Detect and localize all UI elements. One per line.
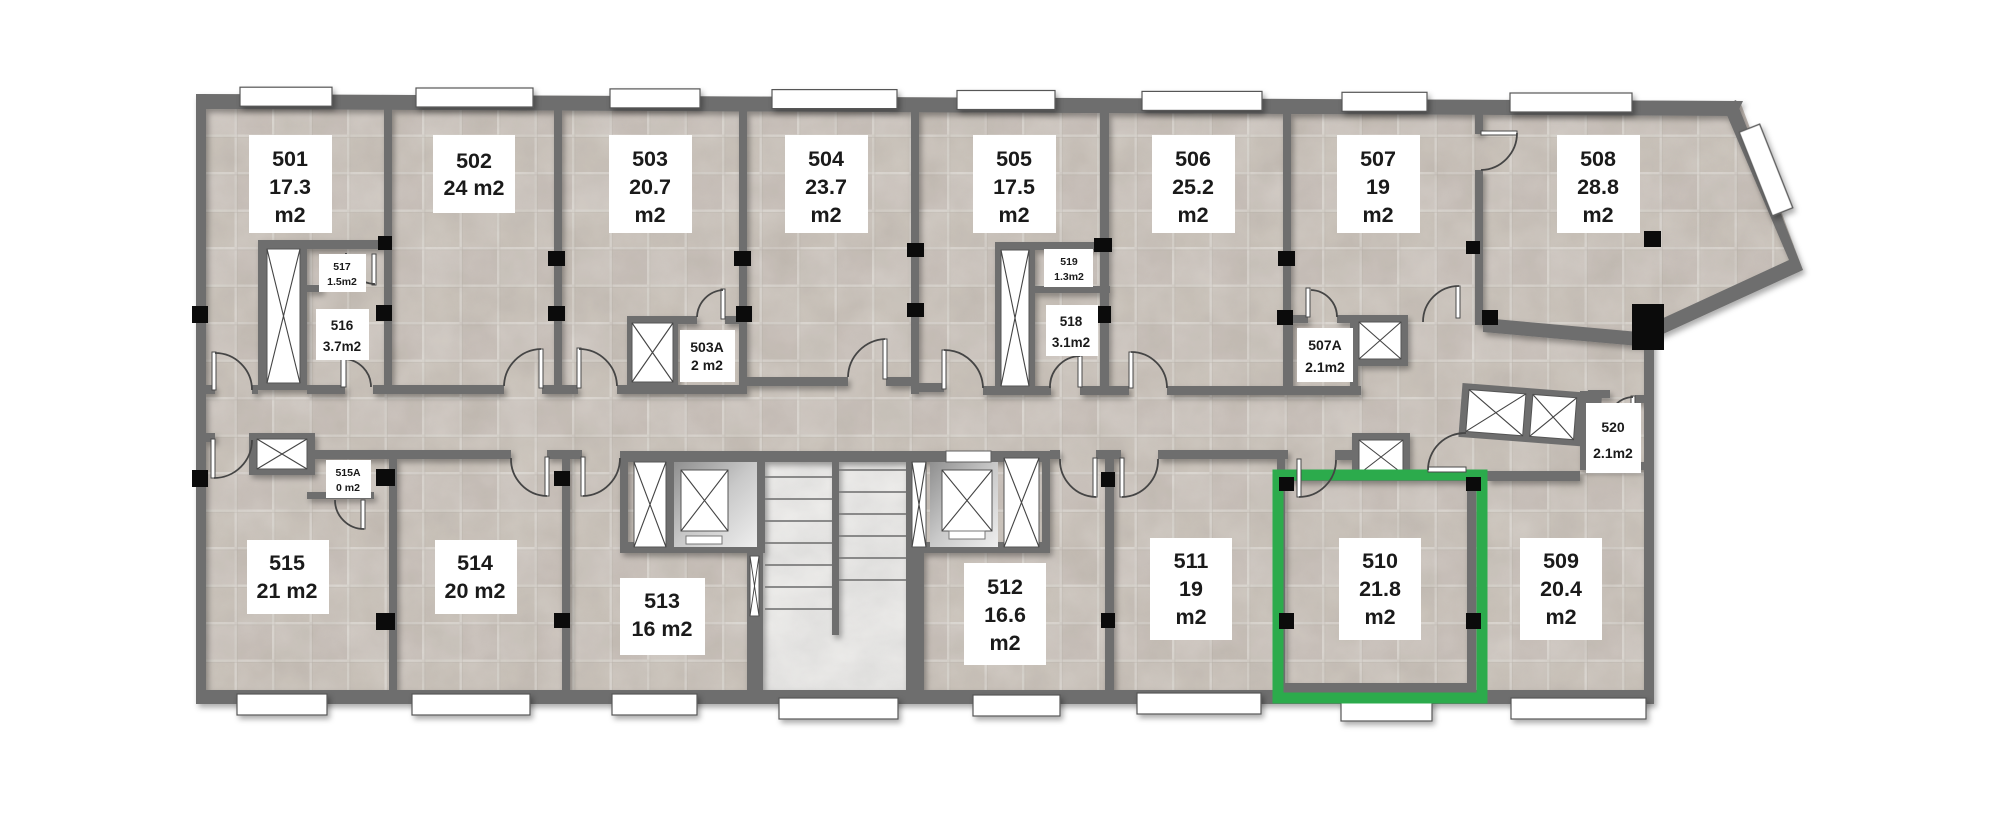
svg-text:515A: 515A — [335, 467, 361, 479]
svg-text:23.7: 23.7 — [805, 175, 847, 199]
svg-text:m2: m2 — [1177, 203, 1208, 227]
svg-text:24 m2: 24 m2 — [444, 176, 505, 200]
svg-text:0 m2: 0 m2 — [336, 482, 360, 494]
svg-text:507A: 507A — [1308, 337, 1341, 353]
svg-text:3.1m2: 3.1m2 — [1052, 335, 1090, 350]
svg-text:503A: 503A — [690, 339, 723, 355]
svg-text:28.8: 28.8 — [1577, 175, 1619, 199]
svg-text:19: 19 — [1179, 577, 1203, 601]
svg-text:2 m2: 2 m2 — [691, 357, 723, 373]
svg-text:21 m2: 21 m2 — [257, 579, 318, 603]
svg-text:m2: m2 — [1175, 605, 1206, 629]
svg-text:2.1m2: 2.1m2 — [1593, 445, 1633, 461]
svg-text:m2: m2 — [1582, 203, 1613, 227]
svg-text:m2: m2 — [1362, 203, 1393, 227]
svg-text:504: 504 — [808, 147, 844, 171]
svg-text:501: 501 — [272, 147, 308, 171]
svg-text:m2: m2 — [998, 203, 1029, 227]
svg-text:502: 502 — [456, 149, 492, 173]
svg-text:509: 509 — [1543, 549, 1579, 573]
svg-text:m2: m2 — [1545, 605, 1576, 629]
svg-text:503: 503 — [632, 147, 668, 171]
svg-text:20.4: 20.4 — [1540, 577, 1582, 601]
svg-text:505: 505 — [996, 147, 1032, 171]
svg-text:517: 517 — [333, 261, 351, 273]
svg-text:19: 19 — [1366, 175, 1390, 199]
svg-text:m2: m2 — [1364, 605, 1395, 629]
svg-text:518: 518 — [1060, 314, 1083, 329]
svg-text:m2: m2 — [634, 203, 665, 227]
svg-text:515: 515 — [269, 551, 305, 575]
svg-text:514: 514 — [457, 551, 493, 575]
svg-text:506: 506 — [1175, 147, 1211, 171]
svg-text:21.8: 21.8 — [1359, 577, 1401, 601]
svg-text:513: 513 — [644, 589, 680, 613]
svg-text:3.7m2: 3.7m2 — [323, 339, 361, 354]
svg-text:510: 510 — [1362, 549, 1398, 573]
svg-text:m2: m2 — [989, 631, 1020, 655]
svg-text:25.2: 25.2 — [1172, 175, 1214, 199]
svg-text:516: 516 — [331, 318, 354, 333]
svg-text:2.1m2: 2.1m2 — [1305, 359, 1345, 375]
svg-text:20 m2: 20 m2 — [445, 579, 506, 603]
svg-text:519: 519 — [1060, 256, 1078, 268]
svg-text:m2: m2 — [274, 203, 305, 227]
svg-text:520: 520 — [1601, 419, 1625, 435]
svg-text:16 m2: 16 m2 — [632, 617, 693, 641]
svg-text:m2: m2 — [810, 203, 841, 227]
svg-text:17.5: 17.5 — [993, 175, 1035, 199]
svg-text:16.6: 16.6 — [984, 603, 1026, 627]
svg-text:1.3m2: 1.3m2 — [1054, 271, 1084, 283]
svg-text:1.5m2: 1.5m2 — [327, 276, 357, 288]
svg-text:507: 507 — [1360, 147, 1396, 171]
svg-text:508: 508 — [1580, 147, 1616, 171]
svg-text:20.7: 20.7 — [629, 175, 671, 199]
svg-text:512: 512 — [987, 575, 1023, 599]
svg-text:17.3: 17.3 — [269, 175, 311, 199]
svg-text:511: 511 — [1174, 549, 1209, 573]
